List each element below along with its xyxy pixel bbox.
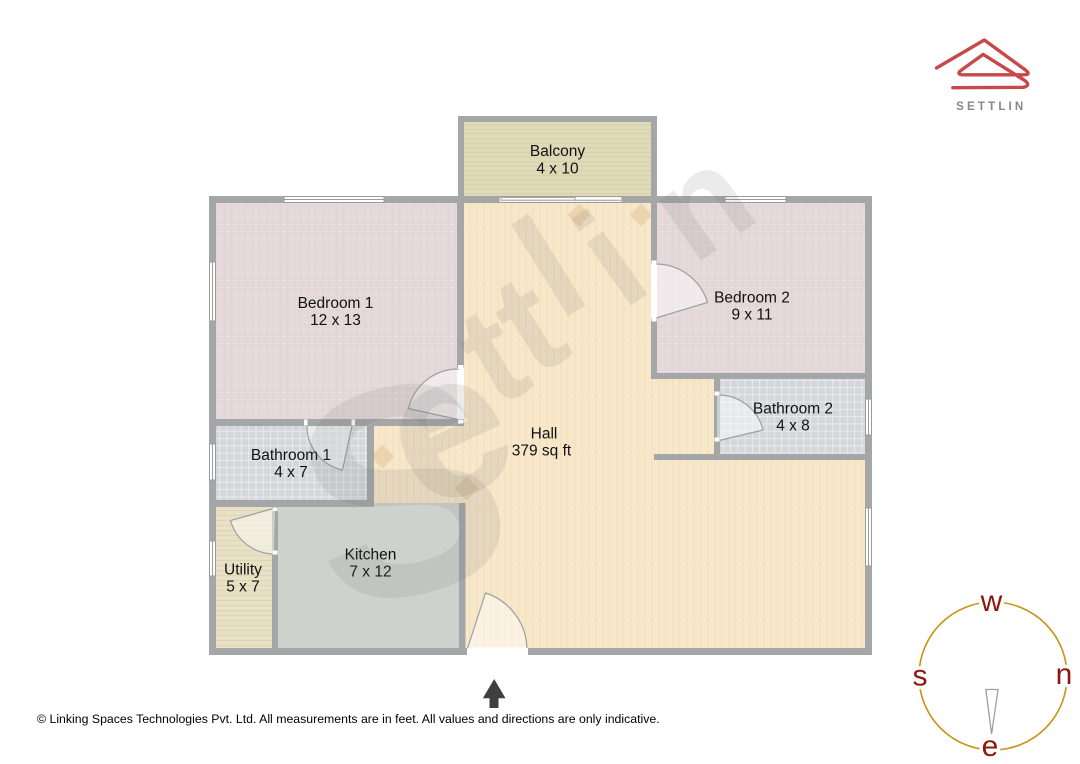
svg-text:e: e (982, 730, 999, 763)
svg-text:Bedroom 1: Bedroom 1 (298, 295, 374, 312)
svg-text:Bathroom 2: Bathroom 2 (753, 401, 833, 418)
svg-text:9 x 11: 9 x 11 (731, 307, 772, 324)
svg-text:4 x 8: 4 x 8 (776, 418, 810, 435)
svg-text:w: w (980, 585, 1003, 618)
svg-text:12 x 13: 12 x 13 (310, 312, 361, 329)
svg-text:Bedroom 2: Bedroom 2 (714, 290, 790, 307)
svg-text:5 x 7: 5 x 7 (226, 579, 260, 596)
svg-text:Hall: Hall (531, 426, 558, 443)
svg-text:SETTLIN: SETTLIN (956, 101, 1026, 113)
svg-text:Balcony: Balcony (530, 143, 585, 160)
svg-text:n: n (1056, 658, 1073, 691)
svg-text:4 x 10: 4 x 10 (536, 161, 579, 178)
svg-text:Utility: Utility (224, 562, 262, 579)
svg-text:s: s (913, 660, 928, 693)
svg-text:© Linking Spaces Technologies: © Linking Spaces Technologies Pvt. Ltd. … (37, 712, 660, 726)
